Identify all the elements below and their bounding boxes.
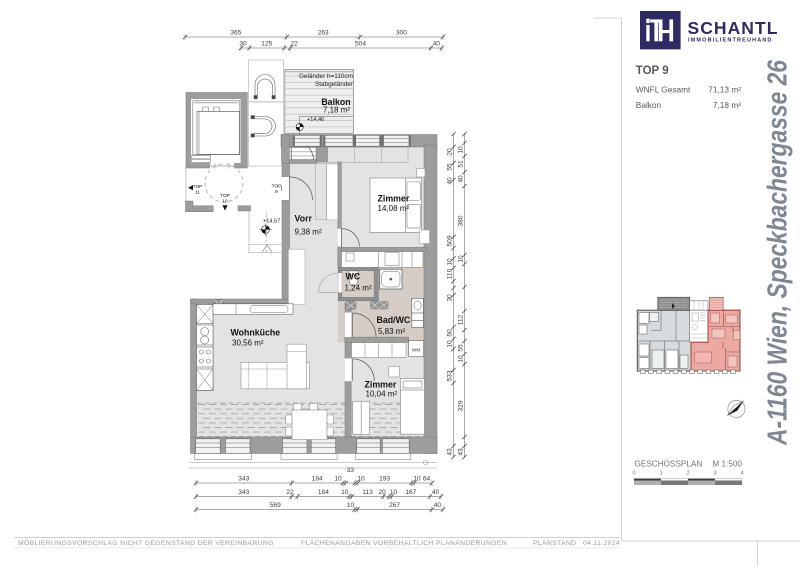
svg-text:2: 2 — [686, 471, 689, 477]
svg-text:40: 40 — [434, 502, 442, 509]
svg-text:14,08 m²: 14,08 m² — [378, 204, 410, 213]
svg-text:WNFL Gesamt: WNFL Gesamt — [636, 85, 691, 95]
svg-text:MÖBLIERUNGSVORSCHLAG NICHT GEG: MÖBLIERUNGSVORSCHLAG NICHT GEGENSTAND DE… — [18, 539, 274, 547]
svg-text:64: 64 — [423, 476, 431, 483]
svg-text:263: 263 — [318, 30, 329, 37]
svg-text:1,24 m²: 1,24 m² — [345, 284, 372, 293]
svg-text:30: 30 — [446, 294, 453, 302]
svg-text:TOP: TOP — [220, 193, 230, 199]
svg-text:5,83 m²: 5,83 m² — [378, 327, 405, 336]
svg-text:Zimmer: Zimmer — [365, 379, 397, 389]
svg-text:TOP 9: TOP 9 — [636, 65, 669, 77]
svg-text:365: 365 — [230, 30, 241, 37]
svg-text:+14,46: +14,46 — [307, 117, 324, 123]
svg-text:30: 30 — [239, 41, 247, 48]
svg-text:7,18 m²: 7,18 m² — [713, 100, 741, 110]
svg-text:10: 10 — [457, 255, 464, 263]
svg-text:125: 125 — [261, 41, 272, 48]
svg-text:4: 4 — [740, 471, 743, 477]
svg-text:329: 329 — [457, 400, 464, 411]
svg-text:51: 51 — [457, 160, 464, 168]
svg-text:20: 20 — [378, 489, 386, 496]
svg-text:113: 113 — [362, 489, 373, 496]
svg-text:110: 110 — [446, 268, 453, 279]
svg-text:3: 3 — [713, 471, 716, 477]
svg-text:1: 1 — [659, 471, 662, 477]
svg-text:267: 267 — [389, 502, 400, 509]
svg-text:Geländer h=110cm: Geländer h=110cm — [299, 73, 353, 80]
svg-text:04.11.2024: 04.11.2024 — [583, 540, 620, 547]
svg-text:10: 10 — [457, 355, 464, 363]
svg-text:Wohnküche: Wohnküche — [231, 328, 281, 338]
svg-text:50: 50 — [446, 329, 453, 337]
svg-text:10: 10 — [357, 476, 365, 483]
svg-text:504: 504 — [355, 41, 366, 48]
svg-text:7,18 m²: 7,18 m² — [323, 106, 350, 115]
svg-text:10: 10 — [413, 476, 421, 483]
svg-text:TOP: TOP — [272, 184, 282, 190]
svg-text:Bad/WC: Bad/WC — [377, 315, 411, 325]
svg-text:55: 55 — [457, 344, 464, 352]
svg-text:M 1:500: M 1:500 — [712, 460, 742, 469]
svg-text:300: 300 — [396, 30, 407, 37]
svg-text:22: 22 — [290, 41, 298, 48]
svg-text:10: 10 — [390, 489, 398, 496]
svg-text:10: 10 — [334, 476, 342, 483]
svg-text:0: 0 — [632, 471, 635, 477]
svg-text:9,38 m²: 9,38 m² — [295, 228, 322, 237]
svg-text:10: 10 — [222, 199, 228, 205]
svg-text:GESCHOSSPLAN: GESCHOSSPLAN — [635, 460, 703, 469]
svg-text:380: 380 — [457, 215, 464, 226]
svg-text:167: 167 — [405, 489, 416, 496]
svg-text:40: 40 — [457, 175, 464, 183]
svg-text:533: 533 — [446, 370, 453, 381]
svg-text:509: 509 — [446, 235, 453, 246]
svg-text:40: 40 — [432, 489, 440, 496]
svg-text:112: 112 — [457, 314, 464, 325]
svg-text:184: 184 — [312, 476, 323, 483]
svg-text:10: 10 — [347, 502, 355, 509]
svg-text:10: 10 — [446, 340, 453, 348]
svg-text:WM: WM — [412, 347, 420, 352]
svg-text:43: 43 — [446, 448, 453, 456]
svg-text:10,04 m²: 10,04 m² — [366, 390, 398, 399]
svg-text:43: 43 — [457, 448, 464, 456]
svg-text:20: 20 — [446, 148, 453, 156]
svg-text:40: 40 — [446, 177, 453, 185]
svg-text:343: 343 — [238, 489, 249, 496]
svg-text:10: 10 — [457, 146, 464, 154]
svg-text:22: 22 — [286, 489, 294, 496]
svg-text:10: 10 — [341, 489, 349, 496]
svg-text:569: 569 — [270, 502, 281, 509]
svg-text:10: 10 — [446, 258, 453, 266]
svg-text:11: 11 — [195, 190, 200, 196]
svg-text:33: 33 — [347, 467, 355, 474]
svg-text:184: 184 — [318, 489, 329, 496]
svg-text:30,56 m²: 30,56 m² — [232, 339, 264, 348]
svg-text:PLANSTAND: PLANSTAND — [533, 540, 576, 547]
svg-text:IMMOBILIENTREUHAND: IMMOBILIENTREUHAND — [688, 38, 773, 44]
svg-text:Vorr: Vorr — [295, 214, 313, 224]
svg-text:193: 193 — [379, 476, 390, 483]
svg-text:FLÄCHENANGABEN VORBEHALTLICH P: FLÄCHENANGABEN VORBEHALTLICH PLANÄNDERUN… — [301, 539, 507, 547]
svg-text:343: 343 — [238, 476, 249, 483]
svg-text:55: 55 — [446, 163, 453, 171]
svg-text:A-1160 Wien, Speckbachergasse: A-1160 Wien, Speckbachergasse 26 — [762, 60, 793, 446]
svg-text:Balkon: Balkon — [636, 100, 662, 110]
svg-text:71,13 m²: 71,13 m² — [708, 85, 741, 95]
svg-text:WC: WC — [346, 272, 361, 282]
svg-text:SCHANTL: SCHANTL — [688, 18, 779, 38]
svg-text:40: 40 — [433, 41, 441, 48]
svg-text:Stabgeländer: Stabgeländer — [315, 81, 354, 88]
svg-text:9: 9 — [275, 189, 278, 195]
svg-text:TOP: TOP — [193, 184, 203, 190]
svg-text:Zimmer: Zimmer — [378, 193, 410, 203]
